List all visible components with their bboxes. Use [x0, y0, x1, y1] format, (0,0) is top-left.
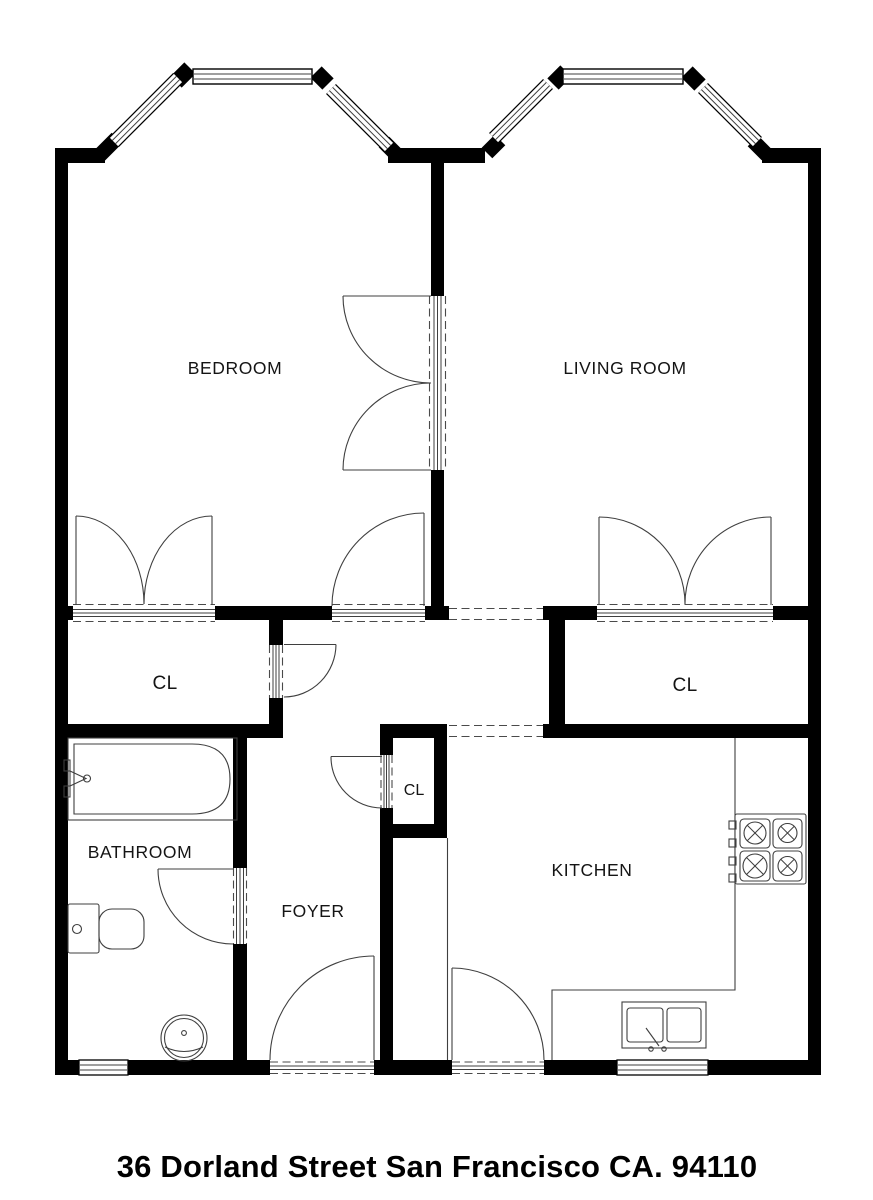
opening-bathroom-door [234, 868, 247, 944]
wall-segment [55, 724, 283, 738]
wall-segment [380, 724, 393, 755]
wall-segment [215, 606, 332, 620]
door-left-closet [284, 645, 336, 698]
closet-double-door [599, 517, 771, 605]
opening-hall-kitchen [449, 726, 543, 737]
wall-segment [374, 1060, 452, 1075]
opening-left-closet-door [270, 645, 283, 698]
wall-segment [544, 1060, 617, 1075]
kitchen-counter [552, 738, 735, 1060]
window [617, 1060, 708, 1075]
pedestal-sink [161, 1015, 207, 1061]
toilet [68, 904, 144, 953]
kitchen-sink [622, 1002, 706, 1051]
window [112, 76, 179, 143]
window [563, 69, 683, 84]
label-closet-left: CL [152, 673, 177, 694]
label-kitchen: KITCHEN [551, 860, 632, 880]
wall-segment [425, 606, 449, 620]
closet-double-door [76, 516, 212, 605]
wall-segment [431, 163, 444, 296]
wall-segment [380, 838, 393, 1060]
label-closet-center: CL [404, 782, 425, 799]
window [329, 87, 390, 148]
label-foyer: FOYER [281, 901, 344, 921]
door-bedroom [332, 513, 424, 606]
wall-segment [128, 1060, 270, 1075]
wall-segment [708, 1060, 821, 1075]
bay-window-bedroom [99, 68, 397, 156]
wall-segment [773, 606, 810, 620]
interior-walls [55, 163, 810, 1060]
wall-corner [687, 72, 700, 85]
wall-segment [388, 148, 485, 163]
wall-openings [73, 296, 773, 1074]
opening-hall-living [449, 609, 543, 620]
bathtub [64, 738, 237, 820]
opening-kitchen-door [452, 1062, 544, 1074]
wall-corner [316, 72, 328, 84]
wall-segment [269, 620, 283, 645]
wall-segment [55, 606, 73, 620]
stove [729, 814, 806, 884]
opening-center-closet-door [381, 755, 392, 808]
door-bathroom [158, 869, 233, 944]
wall-segment [543, 606, 597, 620]
door-center-closet [331, 757, 382, 809]
wall-segment [549, 620, 565, 724]
window [79, 1060, 128, 1075]
label-bedroom: BEDROOM [188, 358, 283, 378]
door-entry [270, 956, 374, 1060]
opening-bedroom-closet [73, 605, 215, 622]
window [492, 82, 549, 139]
floor-plan-page: BEDROOM LIVING ROOM CL CL CL BATHROOM FO… [0, 0, 873, 1200]
opening-french-doors [430, 296, 446, 470]
wall-segment [431, 470, 444, 620]
doors [76, 296, 771, 1060]
bay-window-living-room [487, 69, 767, 155]
floor-plan-drawing: BEDROOM LIVING ROOM CL CL CL BATHROOM FO… [0, 0, 873, 1200]
label-closet-right: CL [672, 675, 697, 696]
window [193, 69, 312, 84]
wall-segment [233, 944, 247, 1060]
label-bathroom: BATHROOM [88, 842, 193, 862]
address-caption: 36 Dorland Street San Francisco CA. 9411… [117, 1149, 758, 1184]
wall-segment [233, 738, 247, 868]
opening-living-closet [597, 605, 773, 622]
wall-segment [380, 824, 447, 838]
wall-segment [269, 698, 283, 724]
opening-bedroom-door [332, 605, 425, 622]
opening-entry-door [270, 1062, 374, 1074]
wall-segment [434, 724, 447, 838]
wall-segment [543, 724, 810, 738]
window [701, 86, 758, 143]
french-doors [343, 296, 431, 470]
wall-segment [55, 1060, 79, 1075]
door-kitchen [452, 968, 544, 1060]
label-living-room: LIVING ROOM [563, 358, 686, 378]
